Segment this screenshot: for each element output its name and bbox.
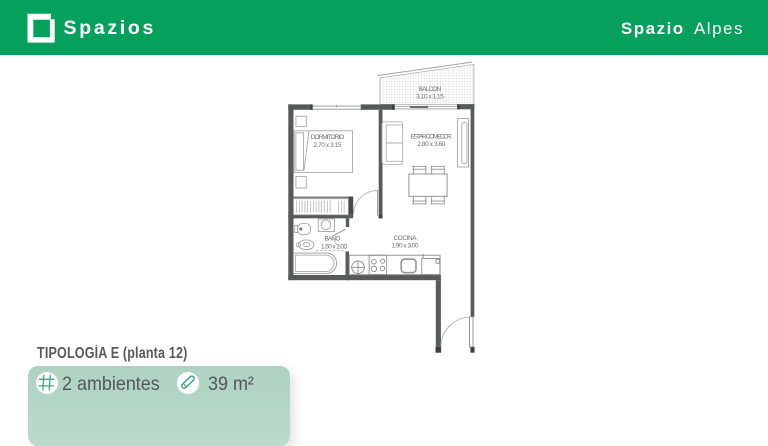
svg-text:1.90 x 3.00: 1.90 x 3.00 <box>392 242 419 249</box>
svg-text:2.80 x 3.60: 2.80 x 3.60 <box>417 141 445 148</box>
svg-text:BAÑO: BAÑO <box>325 234 341 243</box>
svg-text:3.10 x 1.15: 3.10 x 1.15 <box>416 94 444 101</box>
svg-text:ESTAR COMEDOR: ESTAR COMEDOR <box>411 134 452 141</box>
svg-text:1.50 x 2.00: 1.50 x 2.00 <box>321 244 347 251</box>
svg-text:2.70 x 3.15: 2.70 x 3.15 <box>314 142 342 149</box>
svg-text:COCINA: COCINA <box>394 235 418 242</box>
svg-text:DORMITORIO: DORMITORIO <box>311 134 345 141</box>
svg-text:BALCON: BALCON <box>419 86 442 93</box>
